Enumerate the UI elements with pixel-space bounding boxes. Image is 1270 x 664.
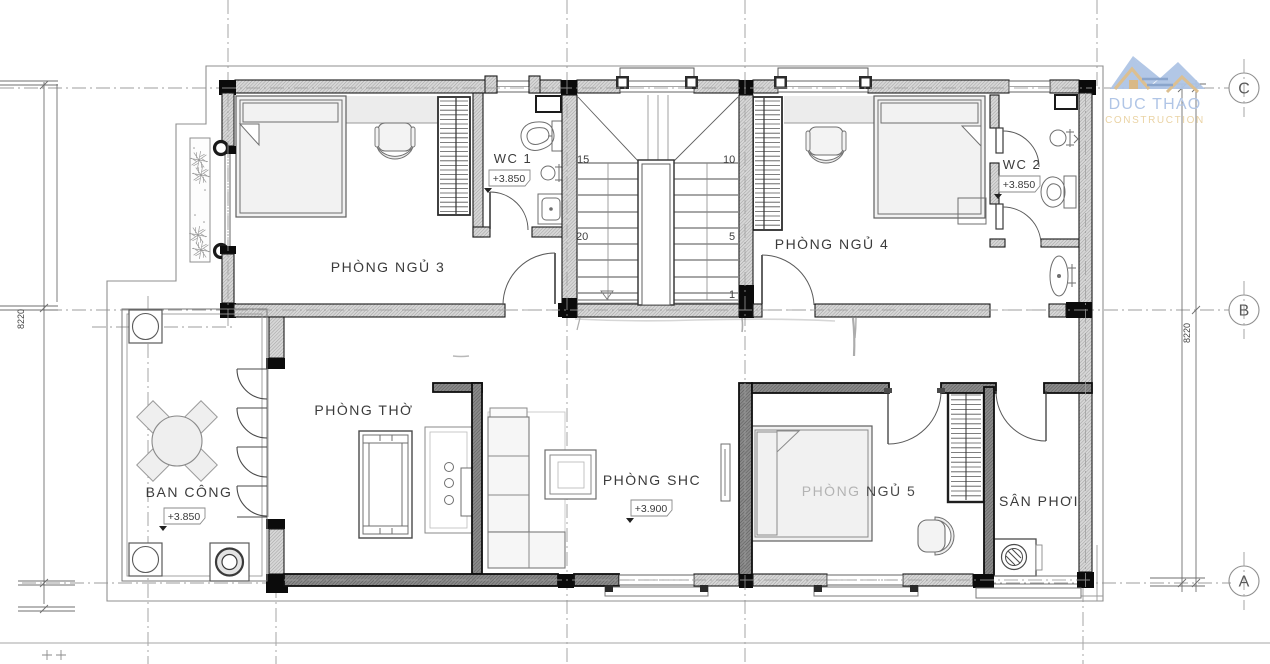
svg-text:8220: 8220 (1182, 323, 1192, 343)
svg-text:10: 10 (723, 154, 735, 166)
svg-text:20: 20 (576, 231, 588, 243)
svg-text:DUC THAO: DUC THAO (1109, 96, 1202, 113)
svg-text:PHÒNG SHC: PHÒNG SHC (603, 472, 701, 488)
svg-text:+3.850: +3.850 (1003, 179, 1036, 191)
svg-text:BAN CÔNG: BAN CÔNG (146, 484, 233, 500)
svg-text:+3.900: +3.900 (635, 503, 668, 515)
svg-text:+3.850: +3.850 (168, 511, 201, 523)
svg-text:PHÒNG NGỦ 3: PHÒNG NGỦ 3 (331, 258, 446, 275)
svg-text:WC 2: WC 2 (1003, 157, 1042, 172)
svg-text:SÂN PHƠI: SÂN PHƠI (999, 493, 1079, 509)
svg-text:CONSTRUCTION: CONSTRUCTION (1105, 115, 1205, 126)
svg-text:5: 5 (729, 231, 735, 243)
svg-text:PHÒNG NGỦ 4: PHÒNG NGỦ 4 (775, 235, 890, 252)
svg-text:C: C (1238, 81, 1250, 98)
svg-text:PHÒNG THỜ: PHÒNG THỜ (314, 402, 413, 418)
svg-text:B: B (1239, 303, 1250, 320)
svg-text:15: 15 (577, 154, 589, 166)
svg-text:WC 1: WC 1 (494, 151, 533, 166)
svg-text:8220: 8220 (16, 309, 26, 329)
svg-text:PHÒNG NGỦ 5: PHÒNG NGỦ 5 (802, 482, 917, 499)
svg-text:1: 1 (729, 289, 735, 301)
svg-text:A: A (1239, 574, 1250, 591)
svg-text:+3.850: +3.850 (493, 173, 526, 185)
